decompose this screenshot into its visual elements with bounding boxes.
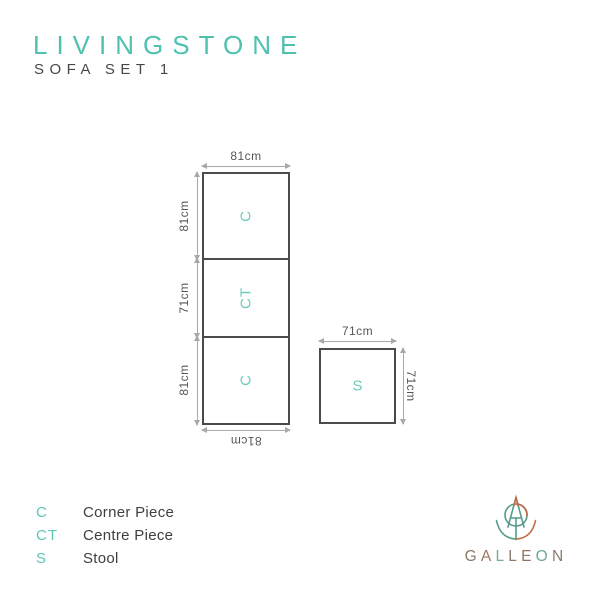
legend-item-centre: CT Centre Piece — [36, 527, 174, 544]
dim-label-corner-top-height: 81cm — [177, 186, 191, 246]
legend-item-stool: S Stool — [36, 550, 174, 567]
dim-label-stool-width: 71cm — [319, 324, 396, 338]
dimension-sheet: LIVINGSTONE SOFA SET 1 C CT C S 81cm 81c… — [0, 0, 600, 600]
galleon-logo: GALLEON — [440, 493, 592, 566]
piece-label-centre: CT — [238, 287, 255, 309]
logo-letter: N — [552, 548, 567, 565]
legend-item-corner: C Corner Piece — [36, 504, 174, 521]
dim-label-centre-height: 71cm — [177, 268, 191, 328]
dim-label-stool-height: 71cm — [404, 356, 418, 416]
logo-letter: G — [465, 548, 481, 565]
dim-line-sofa-top-width — [202, 166, 290, 167]
logo-letter: A — [481, 548, 496, 565]
dim-label-sofa-bottom-width: 81cm — [202, 434, 290, 448]
logo-letter: L — [508, 548, 521, 565]
legend: C Corner Piece CT Centre Piece S Stool — [36, 504, 174, 573]
legend-name: Stool — [83, 550, 119, 567]
page-subtitle: SOFA SET 1 — [34, 61, 174, 78]
dim-label-sofa-top-width: 81cm — [202, 149, 290, 163]
dim-label-corner-bottom-height: 81cm — [177, 350, 191, 410]
dim-line-corner-top-height — [197, 172, 198, 260]
dim-line-corner-bottom-height — [197, 336, 198, 425]
page-title: LIVINGSTONE — [33, 30, 306, 61]
legend-abbr: C — [36, 504, 83, 521]
logo-letter: O — [536, 548, 552, 565]
galleon-anchor-monogram-icon — [492, 493, 540, 547]
piece-label-stool: S — [352, 378, 363, 395]
legend-abbr: CT — [36, 527, 83, 544]
legend-name: Corner Piece — [83, 504, 174, 521]
dim-line-centre-height — [197, 258, 198, 338]
legend-abbr: S — [36, 550, 83, 567]
galleon-wordmark: GALLEON — [440, 548, 592, 566]
piece-label-corner-top: C — [238, 210, 255, 222]
logo-letter: L — [495, 548, 508, 565]
logo-letter: E — [521, 548, 536, 565]
dim-line-sofa-bottom-width — [202, 430, 290, 431]
legend-name: Centre Piece — [83, 527, 173, 544]
dim-line-stool-width — [319, 341, 396, 342]
piece-label-corner-bottom: C — [238, 374, 255, 386]
